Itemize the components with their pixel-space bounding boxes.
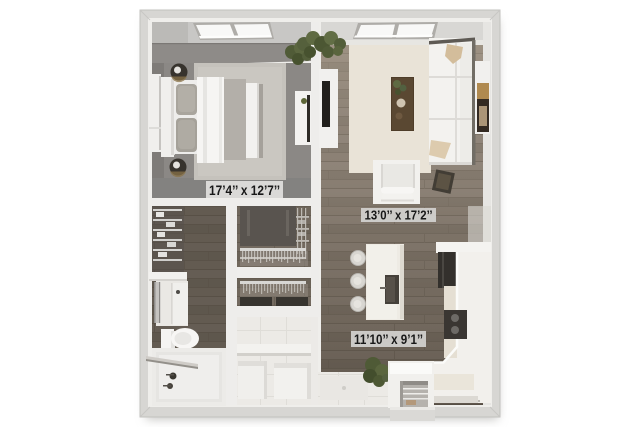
svg-text:17’4’’ x 12’7’’: 17’4’’ x 12’7’’ xyxy=(209,182,280,198)
svg-text:13’0’’ x 17’2’’: 13’0’’ x 17’2’’ xyxy=(365,209,433,223)
svg-text:11’10’’ x 9’1’’: 11’10’’ x 9’1’’ xyxy=(354,332,423,347)
